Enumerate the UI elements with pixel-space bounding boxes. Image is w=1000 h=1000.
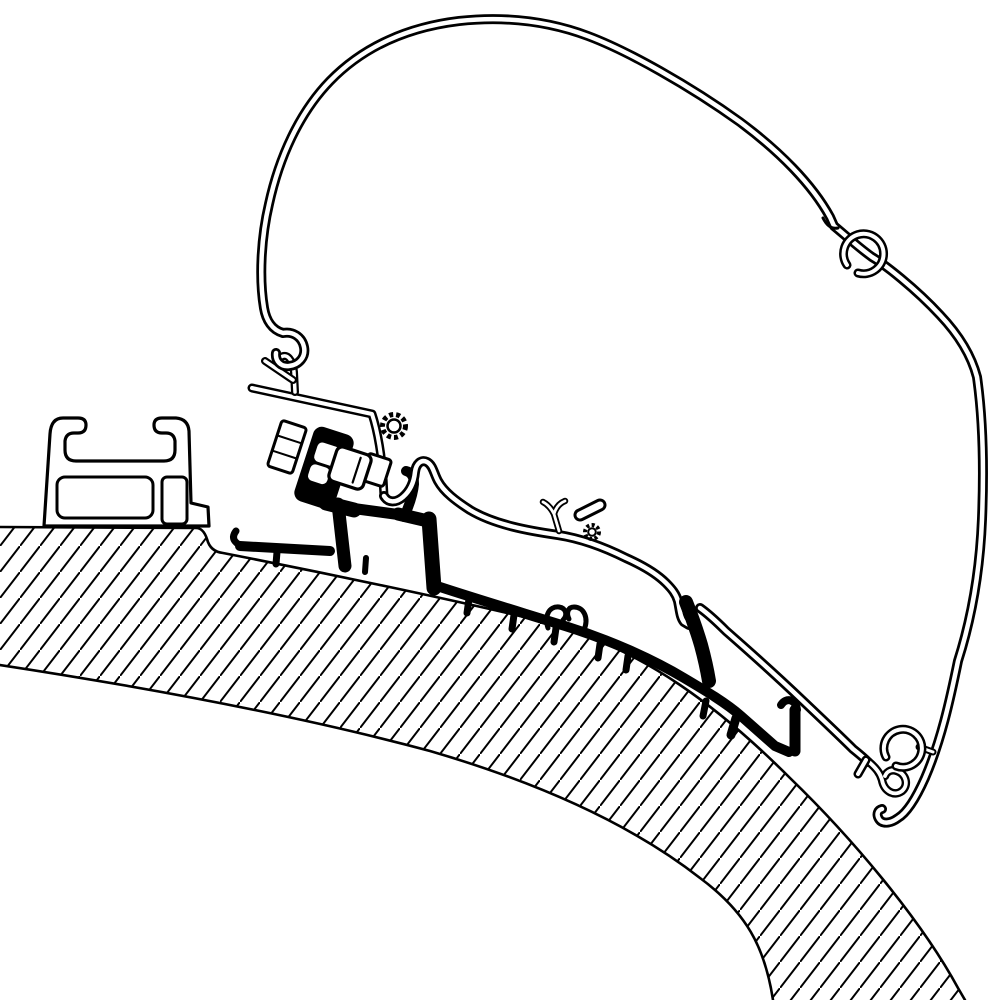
adapter-foot-tick [365, 558, 366, 572]
serrated-boss-bracket [383, 415, 406, 438]
adapter-end-hook-tip [781, 700, 797, 710]
adapter-vertical-member [429, 519, 434, 588]
technical-diagram [0, 0, 1000, 1000]
hex-bolt-head [267, 420, 307, 474]
rail-window-large [57, 477, 153, 518]
lower-c-hook [884, 729, 933, 767]
serrated-boss-rail [585, 525, 599, 539]
adapter-foot-tick [276, 552, 277, 564]
adapter-left-foot-bar [240, 546, 330, 551]
clamp-connector [326, 503, 354, 510]
adapter-left-foot-curl [234, 531, 245, 546]
diagram-canvas [0, 0, 1000, 1000]
left-mounting-rail [44, 418, 209, 526]
rail-window-small [162, 477, 187, 524]
